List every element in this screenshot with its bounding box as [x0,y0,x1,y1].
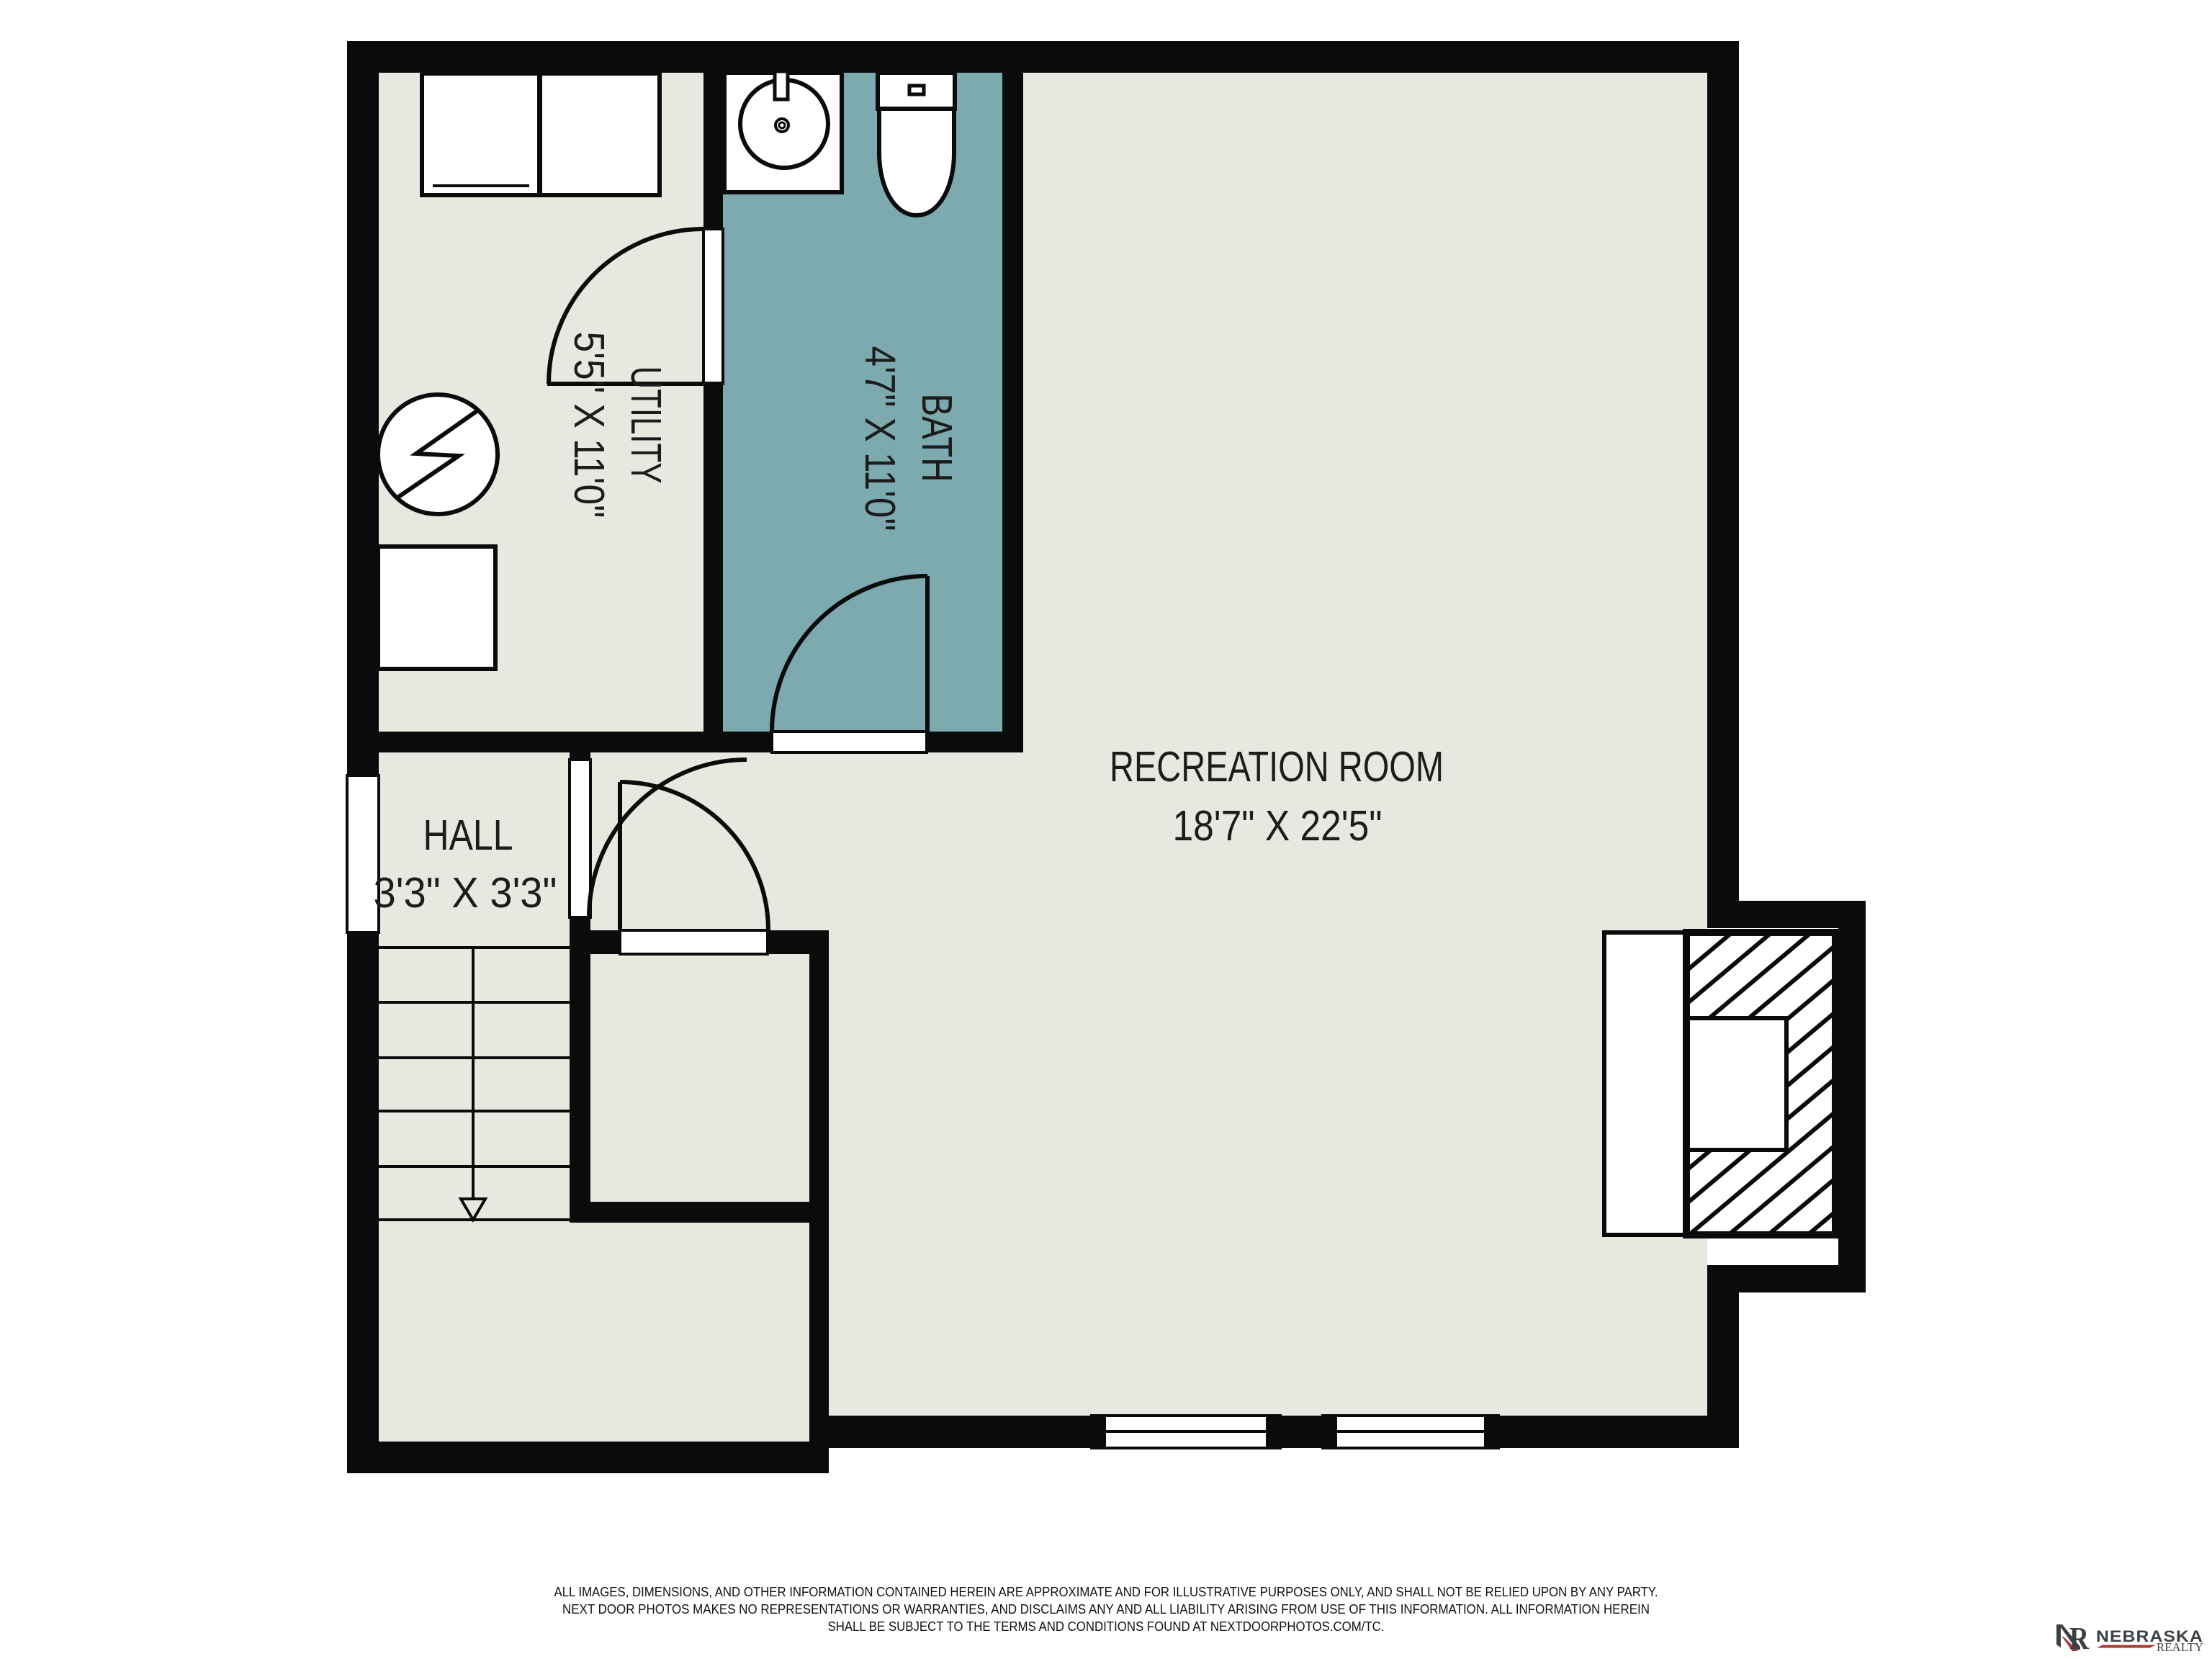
svg-text:RECREATION ROOM: RECREATION ROOM [1110,743,1444,791]
svg-text:ALL IMAGES, DIMENSIONS, AND OT: ALL IMAGES, DIMENSIONS, AND OTHER INFORM… [554,1585,1658,1599]
svg-text:18'7" X 22'5": 18'7" X 22'5" [1173,802,1382,850]
svg-text:R: R [2069,1621,2090,1656]
svg-text:SHALL BE SUBJECT TO THE TERMS: SHALL BE SUBJECT TO THE TERMS AND CONDIT… [828,1619,1385,1634]
svg-text:BATH: BATH [913,394,961,482]
svg-text:HALL: HALL [423,811,513,859]
svg-text:NEXT DOOR PHOTOS MAKES NO REPR: NEXT DOOR PHOTOS MAKES NO REPRESENTATION… [562,1602,1650,1617]
svg-text:REALTY: REALTY [2157,1640,2203,1654]
svg-text:UTILITY: UTILITY [622,367,670,484]
svg-text:4'7" X 11'0": 4'7" X 11'0" [856,346,904,531]
svg-text:5'5" X 11'0": 5'5" X 11'0" [565,332,613,518]
svg-text:3'3" X 3'3": 3'3" X 3'3" [374,869,557,917]
